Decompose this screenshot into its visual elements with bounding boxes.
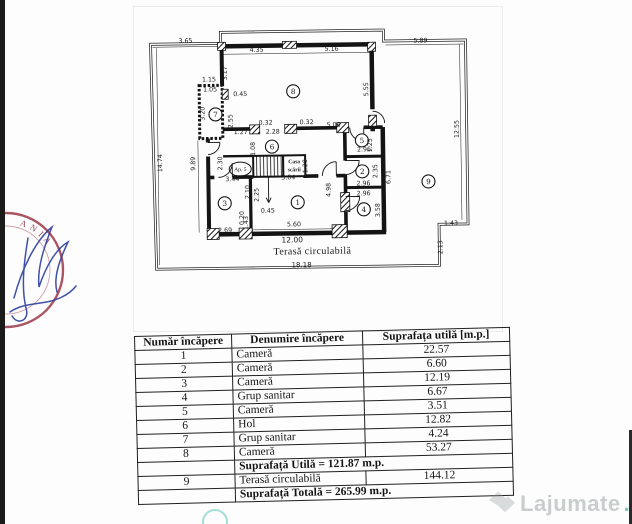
- table-cell: [138, 488, 235, 504]
- plan-scan-border: [133, 6, 503, 332]
- photo-left-edge: [0, 0, 5, 524]
- watermark-text: Lajumate: [520, 491, 621, 517]
- round-stamp: ANIA: [0, 213, 63, 327]
- area-table: Număr încăpere Denumire încăpere Suprafa…: [134, 327, 514, 505]
- stamp-text: ANIA: [19, 218, 56, 250]
- watermark: Lajumate.ro: [487, 488, 632, 519]
- watermark-logo-icon: [487, 488, 517, 519]
- signature: [10, 227, 76, 321]
- watermark-circle: [203, 510, 227, 524]
- document-photo: Ap. 5 Casa scării Terasă circulabilă 123…: [0, 0, 632, 524]
